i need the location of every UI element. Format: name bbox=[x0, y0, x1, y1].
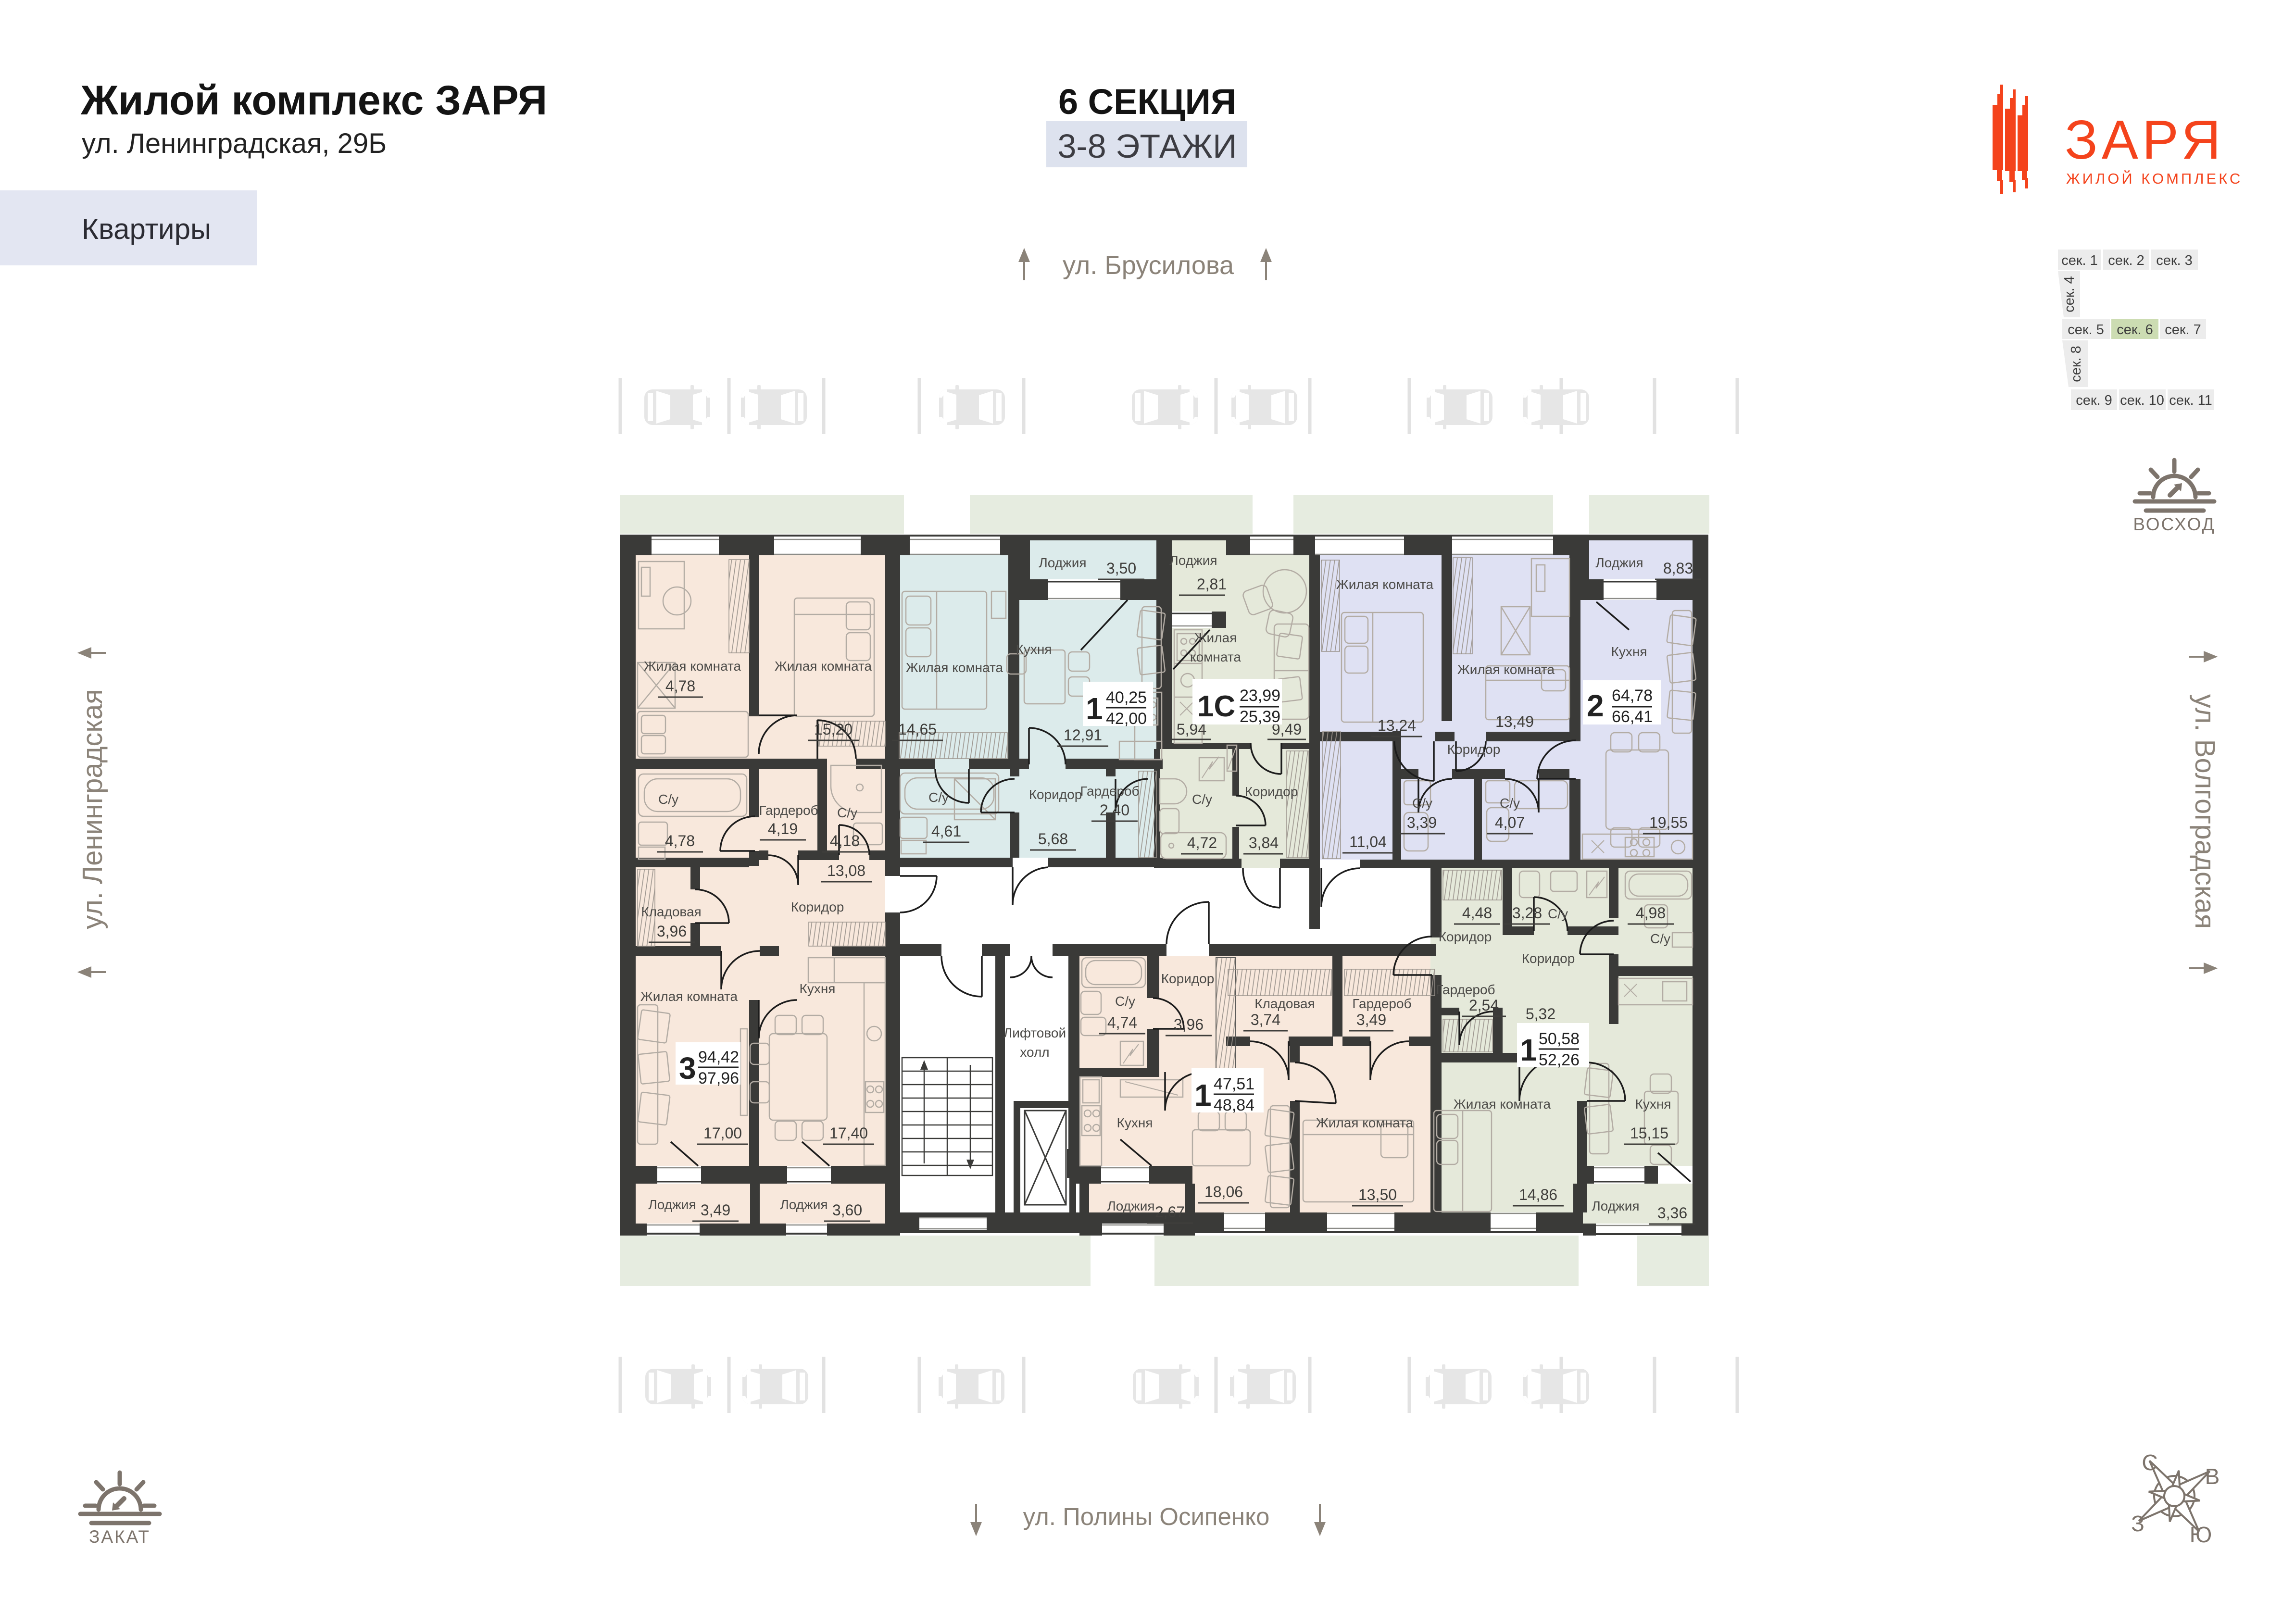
svg-text:15,20: 15,20 bbox=[814, 721, 853, 738]
svg-text:97,96: 97,96 bbox=[698, 1069, 739, 1087]
svg-text:14,86: 14,86 bbox=[1519, 1186, 1557, 1203]
svg-text:1: 1 bbox=[1086, 691, 1103, 726]
svg-text:Коридор: Коридор bbox=[1161, 971, 1215, 986]
svg-text:12,91: 12,91 bbox=[1064, 726, 1102, 744]
svg-text:3,39: 3,39 bbox=[1407, 814, 1437, 831]
svg-text:сек. 1: сек. 1 bbox=[2061, 253, 2098, 268]
svg-text:2,67: 2,67 bbox=[1155, 1203, 1185, 1221]
svg-text:3,28: 3,28 bbox=[1512, 904, 1542, 922]
svg-text:Коридор: Коридор bbox=[791, 899, 844, 914]
svg-text:Гардероб: Гардероб bbox=[759, 803, 818, 818]
svg-text:Жилая комната: Жилая комната bbox=[1454, 1097, 1551, 1112]
svg-text:13,49: 13,49 bbox=[1495, 713, 1534, 730]
svg-text:сек. 7: сек. 7 bbox=[2165, 322, 2201, 337]
svg-text:4,74: 4,74 bbox=[1107, 1014, 1137, 1031]
svg-text:ул. Ленинградская, 29Б: ул. Ленинградская, 29Б bbox=[82, 128, 387, 159]
svg-text:сек. 10: сек. 10 bbox=[2120, 393, 2164, 408]
svg-text:4,18: 4,18 bbox=[830, 832, 860, 849]
svg-text:23,99: 23,99 bbox=[1240, 687, 1280, 705]
svg-text:1: 1 bbox=[1194, 1078, 1212, 1112]
svg-text:ул. Полины Осипенко: ул. Полины Осипенко bbox=[1023, 1503, 1270, 1530]
svg-text:48,84: 48,84 bbox=[1214, 1096, 1254, 1114]
svg-text:47,51: 47,51 bbox=[1214, 1075, 1254, 1093]
svg-text:Гардероб: Гардероб bbox=[1436, 982, 1495, 997]
svg-text:3-8 ЭТАЖИ: 3-8 ЭТАЖИ bbox=[1057, 127, 1237, 165]
svg-text:11,04: 11,04 bbox=[1349, 833, 1387, 850]
svg-text:3,49: 3,49 bbox=[1356, 1011, 1386, 1028]
svg-text:3,84: 3,84 bbox=[1249, 834, 1279, 851]
svg-text:Коридор: Коридор bbox=[1245, 784, 1298, 799]
svg-text:3,60: 3,60 bbox=[832, 1201, 862, 1219]
svg-text:ЖИЛОЙ КОМПЛЕКС: ЖИЛОЙ КОМПЛЕКС bbox=[2066, 170, 2243, 187]
svg-text:сек. 11: сек. 11 bbox=[2169, 393, 2212, 408]
svg-text:Коридор: Коридор bbox=[1029, 787, 1082, 802]
svg-text:холл: холл bbox=[1020, 1045, 1049, 1060]
svg-text:С/у: С/у bbox=[837, 805, 857, 820]
svg-text:сек. 2: сек. 2 bbox=[2108, 253, 2145, 268]
svg-text:4,19: 4,19 bbox=[768, 820, 798, 837]
svg-text:Лифтовой: Лифтовой bbox=[1003, 1025, 1066, 1040]
svg-text:17,00: 17,00 bbox=[703, 1124, 742, 1142]
svg-text:3,96: 3,96 bbox=[1174, 1016, 1204, 1033]
svg-text:ул. Ленинградская: ул. Ленинградская bbox=[77, 689, 108, 929]
svg-text:С/у: С/у bbox=[1650, 931, 1670, 946]
svg-text:94,42: 94,42 bbox=[698, 1048, 739, 1066]
svg-text:3,49: 3,49 bbox=[701, 1201, 730, 1219]
svg-text:С/у: С/у bbox=[1548, 906, 1568, 921]
svg-text:С/у: С/у bbox=[1192, 792, 1212, 807]
svg-text:Кухня: Кухня bbox=[1635, 1097, 1671, 1112]
svg-text:3,96: 3,96 bbox=[657, 923, 687, 940]
svg-text:Кладовая: Кладовая bbox=[1254, 996, 1315, 1011]
svg-text:С/у: С/у bbox=[658, 792, 678, 807]
svg-text:Жилая комната: Жилая комната bbox=[1336, 577, 1434, 592]
svg-text:Коридор: Коридор bbox=[1522, 951, 1575, 966]
svg-text:Жилой комплекс ЗАРЯ: Жилой комплекс ЗАРЯ bbox=[80, 77, 547, 124]
svg-text:13,50: 13,50 bbox=[1358, 1186, 1397, 1203]
svg-text:Кухня: Кухня bbox=[1016, 642, 1052, 657]
svg-text:Ю: Ю bbox=[2190, 1522, 2212, 1547]
svg-text:3,36: 3,36 bbox=[1657, 1204, 1687, 1222]
svg-text:2,40: 2,40 bbox=[1100, 801, 1129, 819]
svg-text:3: 3 bbox=[679, 1051, 696, 1086]
svg-text:Кладовая: Кладовая bbox=[641, 904, 701, 919]
svg-text:В: В bbox=[2205, 1464, 2220, 1489]
svg-text:Лоджия: Лоджия bbox=[780, 1197, 828, 1212]
svg-text:Кухня: Кухня bbox=[1611, 644, 1647, 659]
svg-text:Лоджия: Лоджия bbox=[1169, 553, 1217, 568]
svg-text:ЗАРЯ: ЗАРЯ bbox=[2065, 110, 2225, 171]
svg-text:18,06: 18,06 bbox=[1204, 1183, 1243, 1200]
svg-text:Лоджия: Лоджия bbox=[648, 1197, 696, 1212]
svg-text:Гардероб: Гардероб bbox=[1352, 996, 1411, 1011]
svg-text:ул. Волгоградская: ул. Волгоградская bbox=[2189, 694, 2220, 929]
svg-text:комната: комната bbox=[1190, 650, 1241, 664]
svg-text:50,58: 50,58 bbox=[1539, 1030, 1580, 1048]
svg-text:66,41: 66,41 bbox=[1612, 708, 1653, 726]
svg-text:ЗАКАТ: ЗАКАТ bbox=[89, 1527, 150, 1547]
svg-text:3,50: 3,50 bbox=[1106, 560, 1136, 577]
svg-text:Жилая: Жилая bbox=[1194, 630, 1237, 645]
svg-text:4,61: 4,61 bbox=[931, 823, 961, 840]
svg-text:Коридор: Коридор bbox=[1439, 929, 1492, 944]
svg-text:5,68: 5,68 bbox=[1038, 830, 1068, 848]
svg-text:2,81: 2,81 bbox=[1197, 575, 1227, 593]
svg-text:25,39: 25,39 bbox=[1240, 708, 1280, 726]
svg-text:Лоджия: Лоджия bbox=[1592, 1199, 1639, 1213]
svg-text:С/у: С/у bbox=[1500, 796, 1520, 811]
svg-text:Лоджия: Лоджия bbox=[1039, 555, 1086, 570]
svg-text:8,83: 8,83 bbox=[1663, 560, 1693, 577]
svg-text:14,65: 14,65 bbox=[898, 721, 937, 738]
svg-text:ВОСХОД: ВОСХОД bbox=[2133, 514, 2215, 534]
svg-text:13,24: 13,24 bbox=[1378, 717, 1416, 734]
svg-text:Жилая комната: Жилая комната bbox=[640, 989, 738, 1004]
svg-text:Коридор: Коридор bbox=[1447, 742, 1501, 757]
svg-text:Квартиры: Квартиры bbox=[82, 213, 211, 245]
svg-text:40,25: 40,25 bbox=[1106, 688, 1147, 707]
svg-text:сек. 5: сек. 5 bbox=[2068, 322, 2104, 337]
svg-text:Лоджия: Лоджия bbox=[1595, 555, 1643, 570]
svg-text:С/у: С/у bbox=[1115, 994, 1135, 1009]
svg-text:ул. Брусилова: ул. Брусилова bbox=[1063, 251, 1234, 280]
svg-text:Кухня: Кухня bbox=[800, 981, 836, 996]
svg-text:52,26: 52,26 bbox=[1539, 1051, 1580, 1069]
svg-text:64,78: 64,78 bbox=[1612, 687, 1653, 705]
svg-text:Лоджия: Лоджия bbox=[1107, 1199, 1154, 1213]
svg-text:Жилая комната: Жилая комната bbox=[1457, 662, 1555, 677]
svg-text:сек. 3: сек. 3 bbox=[2156, 253, 2193, 268]
svg-text:Кухня: Кухня bbox=[1117, 1115, 1153, 1130]
svg-text:С: С bbox=[2142, 1450, 2157, 1475]
svg-text:1: 1 bbox=[1520, 1033, 1537, 1067]
svg-text:42,00: 42,00 bbox=[1106, 710, 1147, 728]
svg-text:сек. 8: сек. 8 bbox=[2069, 346, 2084, 382]
svg-text:Жилая комната: Жилая комната bbox=[1316, 1115, 1414, 1130]
svg-text:С/у: С/у bbox=[928, 790, 949, 805]
svg-text:Жилая комната: Жилая комната bbox=[906, 660, 1003, 675]
svg-text:Гардероб: Гардероб bbox=[1080, 784, 1139, 799]
svg-text:4,48: 4,48 bbox=[1462, 904, 1492, 922]
svg-text:Жилая комната: Жилая комната bbox=[775, 659, 872, 674]
svg-text:4,07: 4,07 bbox=[1495, 814, 1525, 831]
svg-text:5,32: 5,32 bbox=[1526, 1005, 1555, 1023]
svg-text:15,15: 15,15 bbox=[1630, 1124, 1668, 1142]
svg-text:1С: 1С bbox=[1197, 690, 1235, 723]
svg-text:сек. 9: сек. 9 bbox=[2076, 393, 2112, 408]
svg-text:сек. 6: сек. 6 bbox=[2117, 322, 2153, 337]
svg-text:17,40: 17,40 bbox=[829, 1124, 868, 1142]
svg-text:3,74: 3,74 bbox=[1251, 1011, 1280, 1028]
svg-text:З: З bbox=[2131, 1511, 2145, 1536]
svg-text:6 СЕКЦИЯ: 6 СЕКЦИЯ bbox=[1058, 82, 1236, 122]
svg-text:19,55: 19,55 bbox=[1649, 814, 1688, 831]
svg-text:4,72: 4,72 bbox=[1187, 834, 1217, 851]
svg-text:С/у: С/у bbox=[1412, 796, 1432, 811]
svg-text:2,54: 2,54 bbox=[1469, 997, 1499, 1014]
svg-text:сек. 4: сек. 4 bbox=[2062, 276, 2077, 312]
svg-text:2: 2 bbox=[1587, 688, 1604, 723]
svg-text:4,98: 4,98 bbox=[1636, 904, 1666, 922]
svg-text:4,78: 4,78 bbox=[665, 832, 695, 849]
svg-text:13,08: 13,08 bbox=[827, 862, 865, 879]
svg-text:4,78: 4,78 bbox=[665, 677, 695, 695]
svg-text:Жилая комната: Жилая комната bbox=[644, 659, 741, 674]
